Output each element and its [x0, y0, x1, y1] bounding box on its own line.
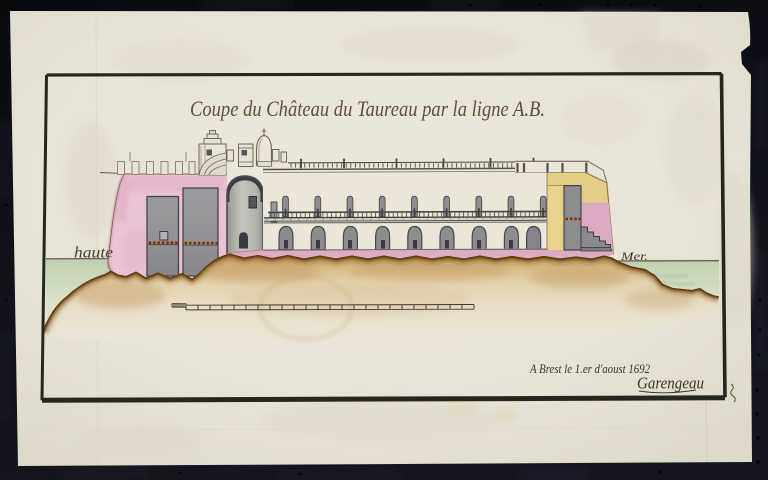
svg-text:A Brest le 1.er d'aoust 1692: A Brest le 1.er d'aoust 1692 [529, 361, 650, 376]
svg-text:haute: haute [74, 245, 113, 262]
svg-text:Coupe du Château du Taureau pa: Coupe du Château du Taureau par la ligne… [190, 96, 545, 121]
svg-text:Mer.: Mer. [620, 249, 648, 263]
svg-text:Garengeau: Garengeau [637, 374, 704, 393]
